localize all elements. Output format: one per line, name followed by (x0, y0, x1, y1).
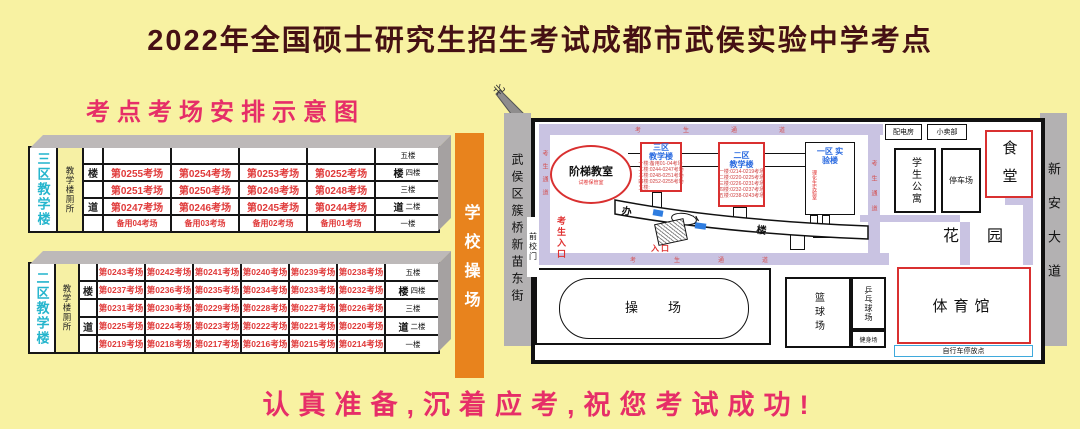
examinee-entrance-label: 考生入口 (555, 216, 568, 260)
exam-room-cell: 第0225考场 (99, 320, 143, 332)
zone3-floor-line: 五楼: (638, 185, 683, 191)
shop: 小卖部 (927, 124, 967, 140)
exam-room-cell: 第0243考场 (99, 266, 143, 278)
stair-cell (80, 300, 96, 316)
exam-room-cell: 第0255考场 (111, 165, 163, 180)
exam-room-cell: 第0220考场 (339, 320, 383, 332)
exam-room-cell: 备用04考场 (117, 218, 158, 229)
floor-label: 一楼 (401, 218, 416, 229)
gymnasium: 体育馆 (897, 267, 1031, 344)
exam-room-cell: 第0244考场 (315, 199, 367, 214)
zone1-note: 理化生实验室 (811, 168, 818, 202)
page-title: 2022年全国硕士研究生招生考试成都市武侯实验中学考点 (0, 17, 1080, 59)
map-zone3-building: 三区 教学楼 一楼:备用01-04考场 二楼:0244-0247考场 三楼:02… (640, 142, 682, 192)
garden-label: 花园 (943, 222, 1031, 246)
stair-label: 道 (394, 199, 404, 214)
table-3d-top-face (30, 135, 451, 148)
exam-room-cell: 第0229考场 (195, 302, 239, 314)
power-room: 配电房 (885, 124, 922, 140)
lecture-hall-name: 阶梯教室 (569, 163, 613, 179)
exam-room-cell: 第0242考场 (147, 266, 191, 278)
stair-cell (84, 148, 102, 163)
stair-cell: 道 (80, 318, 96, 334)
zone2-floor-line: 一楼:0214-0219考场 (719, 169, 764, 175)
path-label-middle: 考生通道 (630, 255, 806, 264)
exam-room-cell: 第0222考场 (243, 320, 287, 332)
zone3-building-label: 三区教学楼 (30, 148, 56, 231)
zone3-room-table: 三区教学楼 教学楼厕所 五楼 楼 第0255考场 第0254考场 第0253考场… (28, 146, 440, 233)
exam-room-cell: 备用02考场 (253, 218, 294, 229)
exam-room-cell: 备用03考场 (185, 218, 226, 229)
floor-label: 一楼 (406, 339, 421, 350)
school-playground-bar: 学校操场 (455, 133, 484, 378)
table-3d-top-face (30, 251, 451, 264)
exam-room-cell: 第0218考场 (147, 338, 191, 350)
zone2-floor-line: 二楼:0220-0225考场 (719, 175, 764, 181)
stair-cell: 道 (84, 199, 102, 214)
exam-room-cell: 第0235考场 (195, 284, 239, 296)
floor-label: 五楼 (406, 267, 421, 278)
exam-room-cell: 第0233考场 (291, 284, 335, 296)
exam-room-cell: 第0228考场 (243, 302, 287, 314)
stair-label: 楼 (399, 283, 409, 298)
stair-cell: 楼 (80, 282, 96, 298)
exam-room-cell: 第0245考场 (247, 199, 299, 214)
exam-room-cell: 第0241考场 (195, 266, 239, 278)
road-canteen-stub (1005, 198, 1033, 205)
floor-label: 三楼 (401, 184, 416, 195)
exam-room-cell: 第0239考场 (291, 266, 335, 278)
zone2-floor-line: 四楼:0232-0237考场 (719, 187, 764, 193)
exam-room-cell: 第0231考场 (99, 302, 143, 314)
exam-room-cell: 第0237考场 (99, 284, 143, 296)
stair-cell: 楼 (84, 165, 102, 180)
pingpong-court: 乒乓球场 (851, 277, 886, 330)
zone2-toilet-label: 教学楼厕所 (56, 264, 78, 352)
path-label-top: 考生通道 (635, 125, 827, 134)
campus-map: 考生通道 考生通道 考生通道 考生通道 阶梯教室 试卷保管室 三区 教学楼 一楼… (531, 118, 1045, 364)
stair-cell (80, 336, 96, 352)
exam-room-cell: 第0248考场 (315, 182, 367, 197)
zone2-building-label: 二区教学楼 (30, 264, 54, 352)
exam-room-cell: 第0240考场 (243, 266, 287, 278)
exam-room-cell: 第0216考场 (243, 338, 287, 350)
zone2-name: 二区 教学楼 (729, 151, 755, 169)
exam-room-cell: 第0214考场 (339, 338, 383, 350)
lecture-hall: 阶梯教室 试卷保管室 (550, 145, 632, 204)
canteen: 食堂 (985, 130, 1033, 198)
running-track (559, 278, 749, 339)
track-field: 操场 (535, 268, 771, 345)
stair-cell (84, 182, 102, 197)
exam-room-cell: 第0236考场 (147, 284, 191, 296)
floor-label: 三楼 (406, 303, 421, 314)
bike-parking: 自行车停放点 (894, 345, 1033, 357)
exam-room-cell: 第0253考场 (247, 165, 299, 180)
stair-label: 楼 (394, 165, 404, 180)
exam-room-cell: 第0219考场 (99, 338, 143, 350)
exam-room-cell: 第0221考场 (291, 320, 335, 332)
path-label-left: 考生通道 (540, 150, 549, 202)
exam-room-cell: 第0215考场 (291, 338, 335, 350)
exam-room-cell: 第0249考场 (247, 182, 299, 197)
exam-room-cell: 第0250考场 (179, 182, 231, 197)
bottom-slogan: 认真准备,沉着应考,祝您考试成功! (0, 383, 1080, 422)
exam-room-cell: 第0247考场 (111, 199, 163, 214)
exam-room-cell: 第0232考场 (339, 284, 383, 296)
exam-room-cell: 第0254考场 (179, 165, 231, 180)
floor-label: 二楼 (406, 201, 421, 212)
stair-label: 道 (399, 319, 409, 334)
exam-room-cell: 第0246考场 (179, 199, 231, 214)
zone2-room-table: 二区教学楼 教学楼厕所 第0243考场 第0242考场 第0241考场 第024… (28, 262, 440, 354)
map-zone2-building: 二区 教学楼 一楼:0214-0219考场 二楼:0220-0225考场 三楼:… (718, 142, 765, 207)
poster: 2022年全国硕士研究生招生考试成都市武侯实验中学考点 考点考场安排示意图 认真… (0, 0, 1080, 429)
zone2-floor-line: 三楼:0226-0231考场 (719, 181, 764, 187)
entrance-label: 入口 (651, 243, 671, 254)
map-zone1-building: 一区 实验楼 理化生实验室 (805, 142, 855, 215)
student-dorm: 学生公寓 (894, 148, 936, 213)
table-3d-right-face (438, 135, 451, 231)
exam-room-cell: 第0251考场 (111, 182, 163, 197)
exam-room-cell: 第0234考场 (243, 284, 287, 296)
floor-label: 五楼 (401, 150, 416, 161)
floor-label: 四楼 (406, 167, 421, 178)
stair-cell (80, 264, 96, 280)
stair-cell (84, 216, 102, 231)
zone1-name: 一区 实验楼 (815, 147, 845, 165)
fitness-area: 健身场 (851, 330, 886, 348)
floor-label: 二楼 (411, 321, 426, 332)
exam-room-cell: 第0217考场 (195, 338, 239, 350)
exam-room-cell: 第0252考场 (315, 165, 367, 180)
table-3d-right-face (438, 251, 451, 352)
exam-room-cell: 第0226考场 (339, 302, 383, 314)
zone3-toilet-label: 教学楼厕所 (58, 148, 82, 231)
exam-room-cell: 第0230考场 (147, 302, 191, 314)
floor-label: 四楼 (411, 285, 426, 296)
exam-room-cell: 第0238考场 (339, 266, 383, 278)
basketball-court: 篮球场 (785, 277, 851, 348)
exam-room-cell: 备用01考场 (321, 218, 362, 229)
zone3-name: 三区 教学楼 (648, 143, 674, 161)
lecture-hall-note: 试卷保管室 (578, 179, 603, 186)
exam-room-cell: 第0223考场 (195, 320, 239, 332)
front-gate: 前校门 (527, 217, 539, 277)
exam-room-cell: 第0224考场 (147, 320, 191, 332)
exam-room-cell: 第0227考场 (291, 302, 335, 314)
section-subtitle: 考点考场安排示意图 (86, 92, 365, 127)
zone2-floor-line: 五楼:0238-0243考场 (719, 193, 764, 199)
parking-lot: 停车场 (941, 148, 981, 213)
